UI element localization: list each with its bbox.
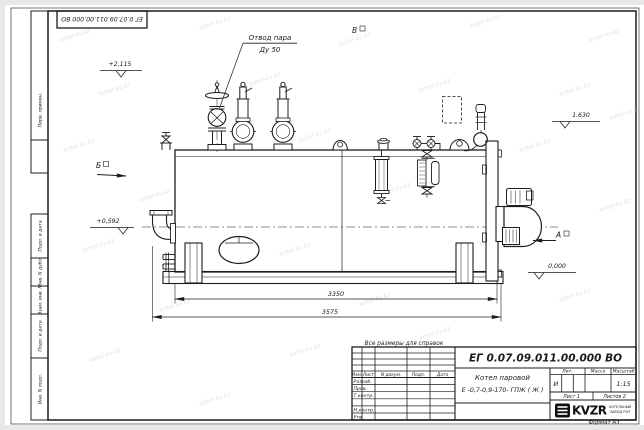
product-name-line1: Котел паровой xyxy=(475,374,530,382)
elevation-ground: 0,000 xyxy=(548,263,566,270)
support-leg-right xyxy=(456,243,473,283)
sheet-cell: Лист 1 xyxy=(562,394,580,400)
role-utv: Утв. xyxy=(354,414,364,420)
callout-line2: Ду 50 xyxy=(259,46,281,54)
stamp-inv-dubl: Инв. N дубл. xyxy=(38,257,44,287)
burner-fin-block xyxy=(503,228,520,245)
role-tkontr: Т.контр. xyxy=(354,393,374,399)
view-a-label: А xyxy=(555,231,561,240)
dim-inner-value: 3350 xyxy=(328,290,344,298)
format-note: Формат А3 xyxy=(588,420,620,426)
lit-header: Лит. xyxy=(561,369,573,375)
view-b-label: Б xyxy=(96,161,101,170)
role-razrab: Разраб. xyxy=(354,379,372,385)
stamp-podp-data-1: Подп. и дата xyxy=(38,220,44,251)
kvzr-logo-sub1: КОТЕЛЬНЫЙ xyxy=(609,404,631,409)
dim-overall-value: 3575 xyxy=(322,308,338,316)
doc-number: ЕГ 0.07.09.011.00.000 ВО xyxy=(469,353,622,365)
stamp-perv-primen: Перв. примен. xyxy=(38,93,44,128)
drawing-sheet: kotel-kv.kz kotel-kv.kz kotel-kv.kz kote… xyxy=(0,0,644,430)
stamp-podp-data-2: Подп. и дата xyxy=(38,320,44,351)
lit-value: И xyxy=(553,380,558,388)
col-list: Лист xyxy=(362,372,375,378)
role-prov: Пров. xyxy=(354,386,368,392)
mass-header: Масса xyxy=(591,369,606,375)
stamp-vzam-inv: Взам. инв. N xyxy=(38,285,44,315)
drawing-canvas: kotel-kv.kz kotel-kv.kz kotel-kv.kz kote… xyxy=(0,0,644,430)
product-name-line2: Е -0,7-0,9-170- ГПЖ ( Ж ) xyxy=(462,387,544,394)
support-leg-left xyxy=(185,243,202,283)
col-ndokum: N докум. xyxy=(381,372,401,378)
scale-value: 1:15 xyxy=(616,380,631,388)
elevation-top: +2,115 xyxy=(109,61,132,68)
elevation-chimney: 1.630 xyxy=(572,112,590,119)
reference-note: Все размеры для справок xyxy=(365,341,444,347)
elevation-middle: +0,592 xyxy=(97,218,120,225)
role-nkontr: Н.контр. xyxy=(354,407,375,413)
callout-line1: Отвод пара xyxy=(249,34,292,42)
kvzr-logo-text: KVZR xyxy=(572,404,607,418)
col-data: Дата xyxy=(436,372,449,378)
stamp-inv-podl: Инв. N подл. xyxy=(38,374,44,404)
col-podp: Подп. xyxy=(412,372,425,378)
scale-header: Масштаб xyxy=(613,369,635,375)
view-v-label: В xyxy=(352,26,357,35)
kvzr-logo-sub2: ЗАВОД РЭП xyxy=(610,410,631,414)
sheets-cell: Листов 2 xyxy=(602,394,626,400)
col-izm: Изм. xyxy=(352,372,362,378)
top-code-text: ЕГ 0.07.09.011.00.000 ВО xyxy=(61,15,143,22)
